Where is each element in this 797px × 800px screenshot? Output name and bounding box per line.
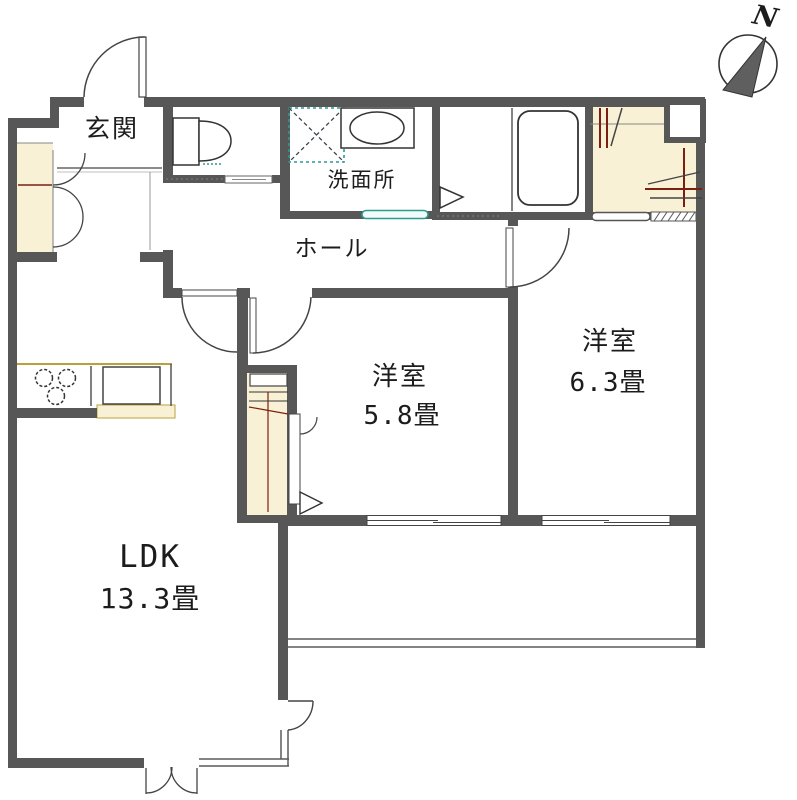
utility-sliding-door	[592, 213, 650, 221]
entrance-door-arc	[84, 37, 145, 97]
ldk-side-door	[279, 701, 313, 730]
toilet-sliding-door	[225, 176, 272, 183]
closet-door-leaf	[289, 414, 300, 504]
room-size-bedroom-large: 6.3畳	[548, 370, 668, 397]
washroom-sliding-door	[362, 211, 428, 219]
kitchen-counter-strip	[97, 405, 175, 418]
room-size-bedroom-small: 5.8畳	[342, 403, 462, 430]
bath-folding-door-icon	[440, 187, 463, 208]
ldk-door	[182, 290, 237, 352]
hatched-window	[651, 212, 696, 221]
room-label-ldk: LDK	[95, 541, 205, 574]
pipe-shaft	[667, 102, 703, 140]
bathroom	[440, 108, 578, 211]
bathtub	[518, 111, 578, 205]
bedroom-large-window	[542, 516, 670, 526]
kitchen-sink	[103, 367, 160, 404]
bedroom-small-window	[367, 516, 501, 526]
room-label-washroom: 洗面所	[312, 169, 412, 191]
room-label-genkan: 玄関	[70, 116, 154, 142]
entrance-door	[84, 37, 146, 97]
floor-plan: 玄関 洗面所 ホール 洋室 5.8畳 洋室 6.3畳 LDK 13.3畳 N	[0, 0, 797, 800]
entrance-door-leaf	[139, 37, 146, 97]
closet-folding-door-icon	[300, 492, 322, 514]
entrance-step-line	[57, 168, 162, 250]
bedroom-small-door	[250, 297, 311, 353]
room-size-ldk: 13.3畳	[70, 584, 230, 613]
toilet-tank	[173, 118, 199, 165]
washing-machine-pan	[289, 108, 344, 162]
kitchen	[17, 364, 172, 406]
ldk-french-doors	[146, 767, 197, 794]
room-label-bedroom-large: 洋室	[562, 329, 658, 356]
balcony-outline	[199, 639, 705, 766]
room-label-hall: ホール	[284, 237, 380, 261]
toilet-bowl	[199, 121, 231, 161]
compass	[719, 35, 777, 97]
vanity-sink	[341, 108, 414, 148]
entrance-closet-fill	[17, 143, 53, 253]
closet-shelf-box	[250, 374, 287, 386]
room-label-bedroom-small: 洋室	[352, 364, 448, 391]
stove-burners	[36, 370, 76, 405]
toilet	[173, 118, 231, 165]
